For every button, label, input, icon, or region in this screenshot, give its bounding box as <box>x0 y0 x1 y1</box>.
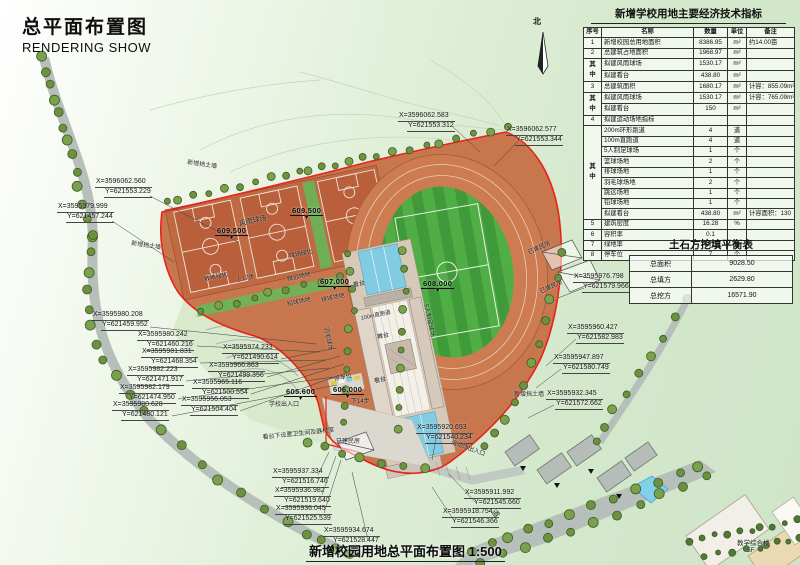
table-cell <box>728 115 747 125</box>
table-cell: 道 <box>728 136 747 146</box>
text-fragment: X=3596062.583 <box>398 112 455 122</box>
tree-icon <box>435 140 443 148</box>
table-cell: 1530.17 <box>694 92 728 104</box>
compass-needle <box>538 32 548 74</box>
table-cell: 1 <box>694 167 728 177</box>
table-cell: 拟建风雨球场 <box>602 59 694 71</box>
tree-icon <box>215 301 223 309</box>
drawing-title-en: RENDERING SHOW <box>22 40 151 55</box>
table-cell: 跳远场地 <box>602 188 694 198</box>
tree-icon <box>318 163 325 170</box>
tree-icon <box>403 288 409 294</box>
text-fragment: X=3595911.992 <box>464 489 521 499</box>
tree-icon <box>396 405 402 411</box>
coordinate-callout: X=3595932.345Y=621572.662 <box>546 390 603 410</box>
table-cell: 8386.95 <box>694 38 728 48</box>
tree-icon <box>701 554 707 560</box>
text-fragment: 其 <box>586 94 599 104</box>
level-marker: 609.500▼ <box>215 226 248 241</box>
tree-icon <box>609 495 617 503</box>
text-fragment: 其 <box>586 162 599 172</box>
text-fragment: Y=621579.966 <box>582 283 630 293</box>
table-row: 拟建看台150m² <box>584 104 795 116</box>
table-cell: 4 <box>694 126 728 136</box>
tree-icon <box>339 450 346 457</box>
tree-icon <box>282 287 289 294</box>
table-cell: m² <box>728 92 747 104</box>
table-cell: 其中 <box>584 126 602 220</box>
coordinate-callout: X=3596062.577Y=621553.344 <box>506 126 563 146</box>
text-fragment: X=3595965.116 <box>192 379 249 389</box>
table-cell: 个 <box>728 198 747 208</box>
tree-icon <box>332 163 338 169</box>
table-cell: 总挖方 <box>630 288 692 304</box>
coordinate-callout: X=3595936.982Y=621519.640 <box>274 487 331 507</box>
table-cell: 羽毛球场地 <box>602 178 694 188</box>
text-fragment: 中 <box>586 172 599 182</box>
tree-icon <box>567 528 575 536</box>
tree-icon <box>699 535 705 541</box>
text-fragment: X=3595937.334 <box>272 468 329 478</box>
table-cell: m² <box>728 209 747 219</box>
tree-icon <box>750 529 755 534</box>
text-fragment: Y=621525.539 <box>284 515 332 525</box>
tree-icon <box>647 352 656 361</box>
table-row: 排球场地1个 <box>584 167 795 177</box>
text-fragment: X=3595960.427 <box>567 324 624 334</box>
level-triangle-icon: ▼ <box>421 289 454 294</box>
tree-icon <box>794 516 800 523</box>
tree-icon <box>487 128 495 136</box>
tree-icon <box>174 196 182 204</box>
coordinate-callout: X=3595956.053Y=621504.404 <box>181 396 238 416</box>
tree-icon <box>346 267 354 275</box>
tree-icon <box>345 157 353 165</box>
table-cell: m² <box>728 104 747 116</box>
table-cell: 个 <box>728 167 747 177</box>
table-row: 跳远场地1个 <box>584 188 795 198</box>
table-cell: 16.28 <box>694 219 728 229</box>
tree-icon <box>359 153 366 160</box>
tree-icon <box>253 179 259 185</box>
table-cell: 1 <box>694 198 728 208</box>
text-fragment: Y=621553.229 <box>104 188 152 198</box>
table-header-row: 序号名称 数量单位 备注 <box>584 28 795 38</box>
tree-icon <box>470 130 476 136</box>
level-marker: 609.500▼ <box>290 206 323 221</box>
tree-icon <box>41 68 50 77</box>
text-fragment: X=3595966.863 <box>208 362 265 372</box>
table-row: 总填方2629.80 <box>630 272 793 288</box>
table-cell: 个 <box>728 157 747 167</box>
table-row: 其中200m环形跑道4道 <box>584 126 795 136</box>
tree-icon <box>623 391 630 398</box>
text-fragment: 中 <box>586 104 599 114</box>
table-cell: 建筑密度 <box>602 219 694 229</box>
tree-icon <box>613 511 622 520</box>
level-triangle-icon: ▼ <box>215 236 248 241</box>
tree-icon <box>500 415 509 424</box>
tree-icon <box>220 184 228 192</box>
table-cell: 200m环形跑道 <box>602 126 694 136</box>
tree-icon <box>686 538 693 545</box>
drawing-title-cn: 总平面布置图 <box>22 12 151 39</box>
building-floors-label: 5F <box>747 547 755 554</box>
tree-icon <box>631 484 641 494</box>
table-cell: 拟建看台 <box>602 70 694 82</box>
tree-icon <box>72 181 82 191</box>
tree-icon <box>396 364 404 372</box>
tree-icon <box>756 524 763 531</box>
coordinate-callout: X=3595976.798Y=621579.966 <box>573 273 630 293</box>
text-fragment: X=3595936.982 <box>274 487 331 497</box>
tree-icon <box>164 198 170 204</box>
table-cell: 2629.80 <box>691 272 792 288</box>
text-fragment: X=3595920.693 <box>416 424 473 434</box>
text-fragment: Y=621459.952 <box>101 321 149 331</box>
tree-icon <box>424 142 430 148</box>
table-cell: 拟建风雨球场 <box>602 92 694 104</box>
table-cell: 计容：855.09m² <box>747 82 795 92</box>
table-cell <box>694 115 728 125</box>
text-fragment: X=3595936.045 <box>275 505 332 515</box>
tree-icon <box>373 154 379 160</box>
tree-icon <box>520 543 530 553</box>
tree-icon <box>321 442 329 450</box>
coordinate-callout: X=3595979.999Y=621457.244 <box>57 203 114 223</box>
compass-north-label: 北 <box>533 16 541 27</box>
table-cell: 篮球场地 <box>602 157 694 167</box>
tree-icon <box>87 248 95 256</box>
tree-icon <box>213 475 223 485</box>
tree-icon <box>267 173 275 181</box>
table-row: 羽毛球场地2个 <box>584 178 795 188</box>
table-cell: 总建筑占地面积 <box>602 48 694 58</box>
tree-icon <box>388 148 396 156</box>
tree-icon <box>401 265 408 272</box>
table-cell: 单位 <box>728 28 747 38</box>
tree-icon <box>344 325 352 333</box>
table-cell: 100m直跑道 <box>602 136 694 146</box>
table-row: 总面积9028.50 <box>630 256 793 272</box>
table-row: 其中拟建风雨球场1530.17m² <box>584 59 795 71</box>
tree-icon <box>737 528 743 534</box>
tree-icon <box>344 348 351 355</box>
table-cell <box>747 59 795 71</box>
table-row: 2总建筑占地面积1968.97m² <box>584 48 795 58</box>
tree-icon <box>264 288 272 296</box>
tree-icon <box>453 135 460 142</box>
tree-icon <box>304 167 312 175</box>
tree-icon <box>297 168 303 174</box>
text-fragment: X=3596062.577 <box>506 126 563 136</box>
table-cell: 1530.17 <box>694 59 728 71</box>
text-fragment: Y=621572.662 <box>555 400 603 410</box>
text-fragment: Y=621546.366 <box>451 518 499 528</box>
tree-icon <box>637 501 645 509</box>
table-cell: 5 <box>584 219 602 229</box>
tree-icon <box>377 460 385 468</box>
table-cell: 7 <box>584 240 602 250</box>
tree-icon <box>693 462 703 472</box>
tree-icon <box>601 423 609 431</box>
table-cell: 4 <box>584 115 602 125</box>
table-cell: 个 <box>728 188 747 198</box>
table-cell: 总面积 <box>630 256 692 272</box>
text-fragment: Y=621580.749 <box>562 364 610 374</box>
table-cell: 4 <box>694 136 728 146</box>
text-fragment: X=3595980.208 <box>92 311 149 321</box>
indicator-table-title: 新增学校用地主要经济技术指标 <box>591 6 786 24</box>
table-cell: 计容面积：130 <box>747 209 795 219</box>
tree-icon <box>527 358 536 367</box>
earthwork-table: 土石方挖填平衡表 总面积9028.50 总填方2629.80 总挖方16571.… <box>629 237 793 304</box>
text-fragment: Y=621504.404 <box>190 406 238 416</box>
tree-icon <box>62 135 72 145</box>
table-row: 5建筑密度16.28% <box>584 219 795 229</box>
coordinate-callout: X=3596062.583Y=621553.312 <box>398 112 455 132</box>
coordinate-callout: X=3596062.560Y=621553.229 <box>95 178 152 198</box>
tree-icon <box>564 510 574 520</box>
table-cell: 拟建看台 <box>602 209 694 219</box>
coordinate-callout: X=3595980.628Y=621480.121 <box>112 401 169 421</box>
table-cell: 6 <box>584 230 602 240</box>
table-cell: 16571.90 <box>691 288 792 304</box>
text-fragment: X=3595979.999 <box>57 203 114 213</box>
building-label: 教学综合楼 <box>737 537 770 547</box>
tree-icon <box>49 95 59 105</box>
table-cell <box>747 104 795 116</box>
table-row: 4拟建运动场地指标 <box>584 115 795 125</box>
table-cell <box>747 167 795 177</box>
table-row: 3总建筑面积1680.17m²计容：855.09m² <box>584 82 795 92</box>
table-cell <box>747 219 795 229</box>
tree-icon <box>421 464 430 473</box>
text-fragment: X=3595981.831 <box>141 348 198 358</box>
tree-icon <box>608 405 617 414</box>
table-row: 拟建看台438.80m² <box>584 70 795 82</box>
tree-icon <box>398 347 404 353</box>
tree-icon <box>351 308 357 314</box>
tree-icon <box>400 463 407 470</box>
table-cell <box>747 115 795 125</box>
table-cell: 5人制足球场 <box>602 146 694 156</box>
table-cell: 道 <box>728 126 747 136</box>
site-plan-page: { "title": { "cn": "总平面布置图", "en": "REND… <box>0 0 800 565</box>
table-cell: 1680.17 <box>694 82 728 92</box>
tree-icon <box>396 386 403 393</box>
coordinate-callout: X=3595947.897Y=621580.749 <box>553 354 610 374</box>
table-row: 100m直跑道4道 <box>584 136 795 146</box>
tree-icon <box>654 478 663 487</box>
tree-icon <box>769 524 775 530</box>
tree-icon <box>774 538 780 544</box>
tree-icon <box>303 438 312 447</box>
table-cell: 备注 <box>747 28 795 38</box>
tree-icon <box>345 251 351 257</box>
tree-icon <box>536 341 543 348</box>
tree-icon <box>89 231 98 240</box>
level-triangle-icon: ▼ <box>290 216 323 221</box>
text-fragment: Y=621457.244 <box>66 213 114 223</box>
text-fragment: Y=621480.121 <box>121 411 169 421</box>
text-fragment: X=3595974.233 <box>222 344 279 354</box>
tree-icon <box>46 80 54 88</box>
tree-icon <box>588 517 598 527</box>
tree-icon <box>671 313 679 321</box>
plan-caption: 新增校园用地总平面布置图 1:500 <box>306 541 505 562</box>
tree-icon <box>190 191 197 198</box>
table-cell <box>747 146 795 156</box>
tree-icon <box>112 370 122 380</box>
tree-icon <box>302 530 311 539</box>
steps-label: 下14步 <box>351 396 370 405</box>
coordinate-callout: X=3595980.208Y=621459.952 <box>92 311 149 331</box>
coordinate-callout: X=3595936.045Y=621525.539 <box>275 505 332 525</box>
table-cell: 总建筑面积 <box>602 82 694 92</box>
table-cell: 计容：765.09m² <box>747 92 795 104</box>
text-fragment: Y=621582.983 <box>576 334 624 344</box>
table-cell: 约14.00亩 <box>747 38 795 48</box>
coordinate-callout: X=3595911.992Y=621545.660 <box>464 489 521 509</box>
table-cell: 拟建运动场地指标 <box>602 115 694 125</box>
coordinate-callout: X=3595981.831Y=621468.354 <box>141 348 198 368</box>
tree-icon <box>654 489 664 499</box>
table-cell <box>747 188 795 198</box>
tree-icon <box>724 531 731 538</box>
table-row: 1新增校园总用地面积8386.95m²约14.00亩 <box>584 38 795 48</box>
text-fragment: X=3595982.223 <box>127 366 184 376</box>
table-cell: m² <box>728 48 747 58</box>
retaining-wall-label: 新增挡土墙 <box>514 389 544 398</box>
tree-icon <box>59 124 67 132</box>
tree-icon <box>68 150 77 159</box>
table-cell: 1968.97 <box>694 48 728 58</box>
existing-house-label: 已建民房 <box>336 436 360 445</box>
tree-icon <box>712 532 717 537</box>
tree-icon <box>233 300 240 307</box>
tree-icon <box>301 281 307 287</box>
tree-icon <box>782 521 787 526</box>
text-fragment: X=3595947.897 <box>553 354 610 364</box>
text-fragment: Y=621553.344 <box>515 136 563 146</box>
tree-icon <box>206 191 212 197</box>
table-cell: 总填方 <box>630 272 692 288</box>
table-cell: 438.80 <box>694 70 728 82</box>
table-cell: 铅球场地 <box>602 198 694 208</box>
table-cell <box>747 126 795 136</box>
tree-icon <box>545 295 554 304</box>
tree-icon <box>73 168 81 176</box>
tree-icon <box>635 369 643 377</box>
table-cell: 3 <box>584 82 602 92</box>
table-cell: 拟建看台 <box>602 104 694 116</box>
table-cell: m² <box>728 70 747 82</box>
table-cell: 438.80 <box>694 209 728 219</box>
table-cell: 序号 <box>584 28 602 38</box>
table-cell: 9028.50 <box>691 256 792 272</box>
table-cell: % <box>728 219 747 229</box>
table-cell: 1 <box>694 188 728 198</box>
text-fragment: X=3595934.674 <box>323 527 380 537</box>
tree-icon <box>542 317 550 325</box>
tree-icon <box>83 285 92 294</box>
coordinate-callout: X=3595974.233Y=621490.614 <box>222 344 279 364</box>
table-cell <box>747 157 795 167</box>
table-cell: 排球场地 <box>602 167 694 177</box>
table-cell <box>747 48 795 58</box>
table-row: 总挖方16571.90 <box>630 288 793 304</box>
tree-icon <box>54 108 63 117</box>
table-cell: 新增校园总用地面积 <box>602 38 694 48</box>
tree-icon <box>99 356 107 364</box>
table-cell: 名称 <box>602 28 694 38</box>
tree-icon <box>237 184 244 191</box>
table-cell: m² <box>728 82 747 92</box>
tree-icon <box>558 248 566 256</box>
tree-icon <box>786 539 791 544</box>
table-cell: 2 <box>584 48 602 58</box>
coordinate-callout: X=3595937.334Y=621516.746 <box>272 468 329 488</box>
tree-icon <box>394 425 402 433</box>
tree-icon <box>677 469 685 477</box>
tree-icon <box>355 453 364 462</box>
coordinate-callout: X=3595960.427Y=621582.983 <box>567 324 624 344</box>
tree-icon <box>341 419 347 425</box>
table-cell: 个 <box>728 178 747 188</box>
text-fragment: Y=621553.312 <box>407 122 455 132</box>
tree-icon <box>512 399 519 406</box>
tree-icon <box>283 172 290 179</box>
text-fragment: X=3595932.345 <box>546 390 603 400</box>
coordinate-callout: X=3595982.223Y=621471.917 <box>127 366 184 386</box>
table-row: 铅球场地1个 <box>584 198 795 208</box>
tree-icon <box>703 472 711 480</box>
table-cell: 其中 <box>584 59 602 82</box>
table-cell <box>747 136 795 146</box>
text-fragment: X=3595980.242 <box>137 331 194 341</box>
tree-icon <box>660 335 667 342</box>
tree-icon <box>177 441 186 450</box>
tree-icon <box>198 461 206 469</box>
tree-icon <box>399 305 407 313</box>
tree-icon <box>796 534 800 541</box>
tree-icon <box>586 501 595 510</box>
tree-icon <box>92 340 101 349</box>
tree-icon <box>406 147 413 154</box>
tree-icon <box>593 438 600 445</box>
tree-icon <box>237 488 246 497</box>
table-cell <box>747 70 795 82</box>
earthwork-table-title: 土石方挖填平衡表 <box>629 237 793 252</box>
tree-icon <box>398 247 406 255</box>
table-row: 5人制足球场1个 <box>584 146 795 156</box>
table-cell: 其中 <box>584 92 602 115</box>
text-fragment: X=3595980.628 <box>112 401 169 411</box>
tree-icon <box>729 549 736 556</box>
tree-icon <box>398 328 405 335</box>
text-fragment: 中 <box>586 70 599 80</box>
table-row: 其中拟建风雨球场1530.17m²计容：765.09m² <box>584 92 795 104</box>
tree-icon <box>758 546 763 551</box>
tree-icon <box>679 482 688 491</box>
table-cell: 1 <box>584 38 602 48</box>
indicator-table: 新增学校用地主要经济技术指标 序号名称 数量单位 备注 1新增校园总用地面积83… <box>583 6 794 261</box>
tree-icon <box>545 520 553 528</box>
text-fragment: X=3595956.053 <box>181 396 238 406</box>
level-marker: 608.000▼ <box>421 279 454 294</box>
tree-icon <box>544 533 553 542</box>
